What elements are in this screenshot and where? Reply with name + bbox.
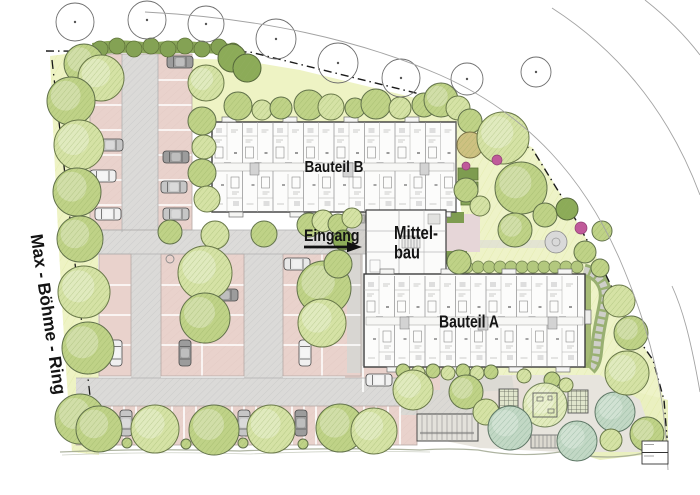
svg-text:Bauteil A: Bauteil A bbox=[439, 312, 499, 332]
svg-text:Mittel-: Mittel- bbox=[394, 223, 438, 243]
svg-text:Bauteil B: Bauteil B bbox=[305, 159, 364, 176]
svg-text:Eingang: Eingang bbox=[304, 226, 360, 245]
svg-text:bau: bau bbox=[394, 243, 420, 263]
